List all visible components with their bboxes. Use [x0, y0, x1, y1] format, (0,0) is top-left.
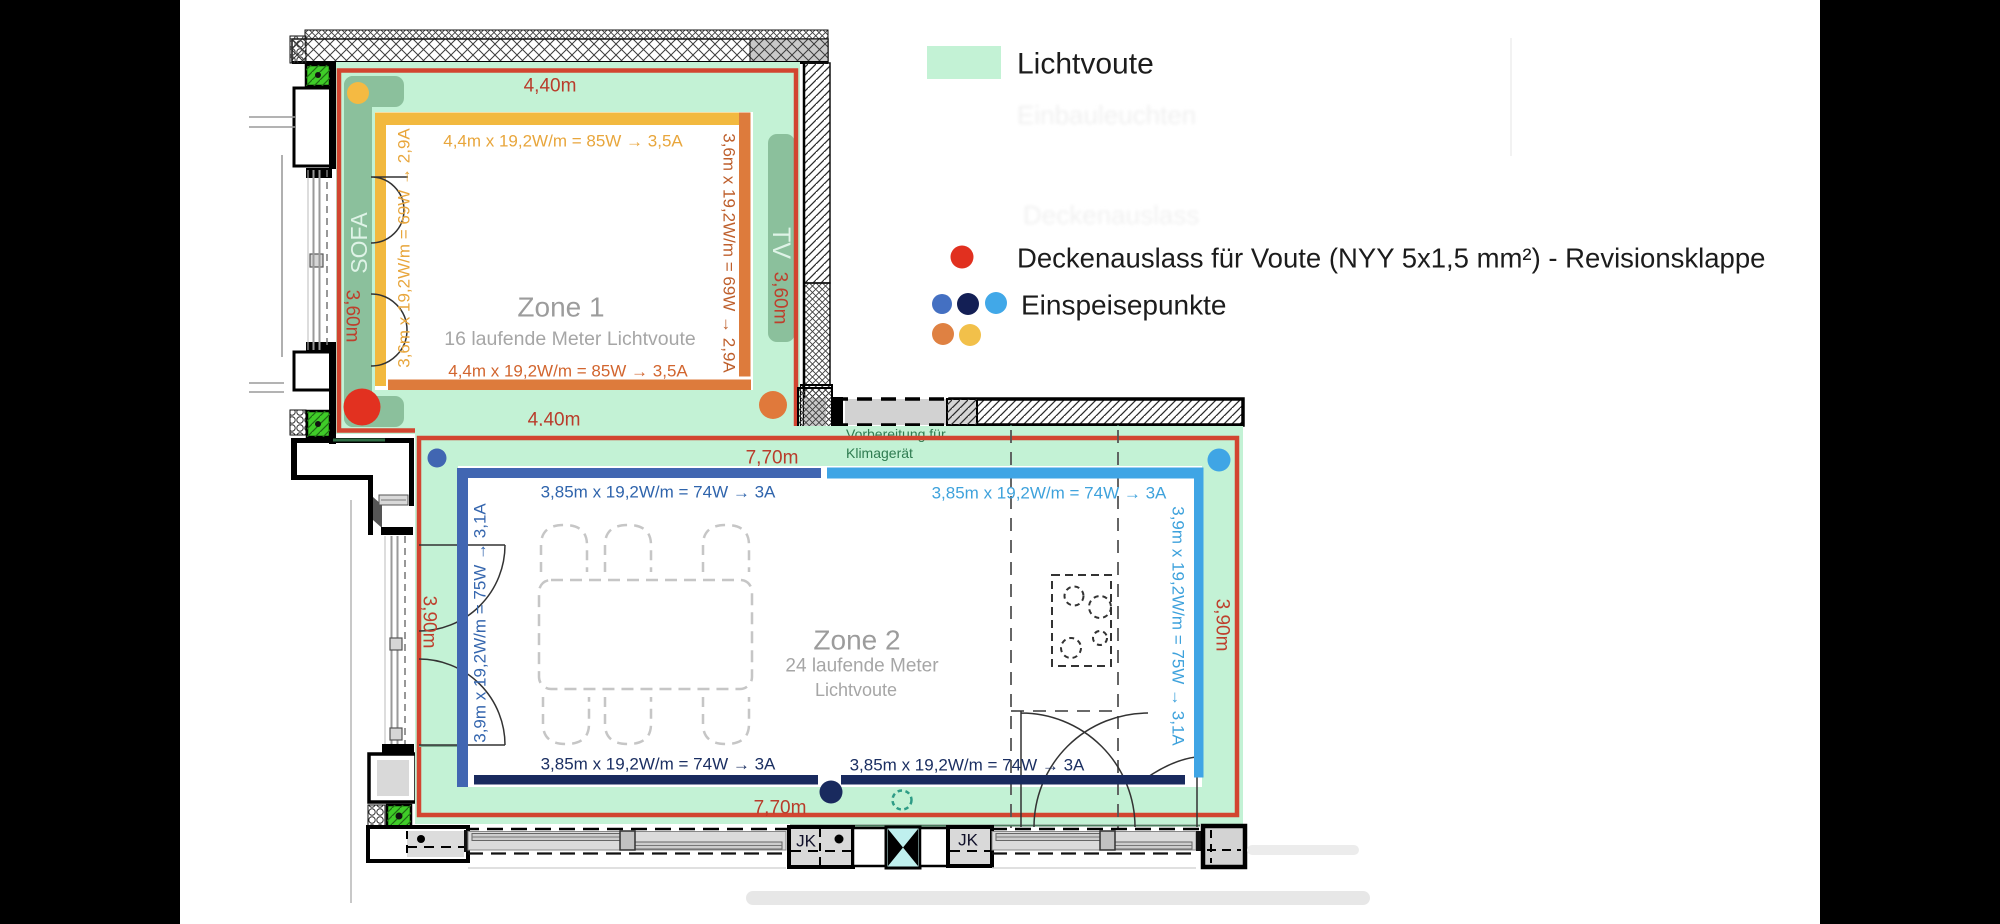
svg-text:4,4m x 19,2W/m = 85W → 3,5A: 4,4m x 19,2W/m = 85W → 3,5A — [443, 132, 683, 151]
svg-text:Einbauleuchten: Einbauleuchten — [1017, 100, 1196, 130]
svg-text:TV: TV — [767, 227, 795, 259]
svg-text:SOFA: SOFA — [346, 212, 372, 274]
svg-text:Lichtvoute: Lichtvoute — [1017, 48, 1154, 81]
svg-text:16 laufende Meter Lichtvoute: 16 laufende Meter Lichtvoute — [444, 328, 696, 350]
svg-text:7,70m: 7,70m — [746, 448, 799, 469]
svg-text:Deckenauslass: Deckenauslass — [1023, 200, 1199, 230]
svg-text:3,9m x 19,2W/m = 75W → 3,1A: 3,9m x 19,2W/m = 75W → 3,1A — [1169, 506, 1188, 746]
svg-text:3,60m: 3,60m — [770, 272, 791, 325]
svg-text:Zone 2: Zone 2 — [813, 625, 900, 656]
svg-text:Klimagerät: Klimagerät — [846, 445, 913, 461]
svg-text:3,90m: 3,90m — [419, 596, 440, 649]
svg-text:Lichtvoute: Lichtvoute — [815, 680, 897, 700]
svg-text:3,9m x 19,2W/m = 75W → 3,1A: 3,9m x 19,2W/m = 75W → 3,1A — [471, 503, 490, 743]
svg-text:4,4m x 19,2W/m = 85W → 3,5A: 4,4m x 19,2W/m = 85W → 3,5A — [448, 362, 688, 381]
svg-text:Einspeisepunkte: Einspeisepunkte — [1021, 290, 1226, 321]
svg-text:3,6m x 19,2W/m = 69W → 2,9A: 3,6m x 19,2W/m = 69W → 2,9A — [720, 133, 739, 373]
svg-text:3,90m: 3,90m — [1212, 599, 1233, 652]
svg-text:JK: JK — [796, 832, 817, 851]
svg-text:3,85m x 19,2W/m = 74W → 3A: 3,85m x 19,2W/m = 74W → 3A — [541, 483, 776, 502]
svg-text:24 laufende Meter: 24 laufende Meter — [785, 656, 939, 677]
svg-text:Deckenauslass für Voute (NYY 5: Deckenauslass für Voute (NYY 5x1,5 mm²) … — [1017, 243, 1765, 274]
svg-text:3,85m x 19,2W/m = 74W → 3A: 3,85m x 19,2W/m = 74W → 3A — [850, 756, 1085, 775]
svg-text:Zone 1: Zone 1 — [517, 292, 604, 323]
svg-text:4,40m: 4,40m — [524, 76, 577, 97]
svg-text:JK: JK — [958, 831, 979, 850]
svg-text:3,6m x 19,2W/m = 69W → 2,9A: 3,6m x 19,2W/m = 69W → 2,9A — [395, 128, 414, 368]
svg-text:3,85m x 19,2W/m = 74W → 3A: 3,85m x 19,2W/m = 74W → 3A — [541, 755, 776, 774]
svg-text:3,85m x 19,2W/m = 74W → 3A: 3,85m x 19,2W/m = 74W → 3A — [932, 484, 1167, 503]
svg-text:7,70m: 7,70m — [754, 798, 807, 819]
svg-text:3,60m: 3,60m — [342, 290, 363, 343]
